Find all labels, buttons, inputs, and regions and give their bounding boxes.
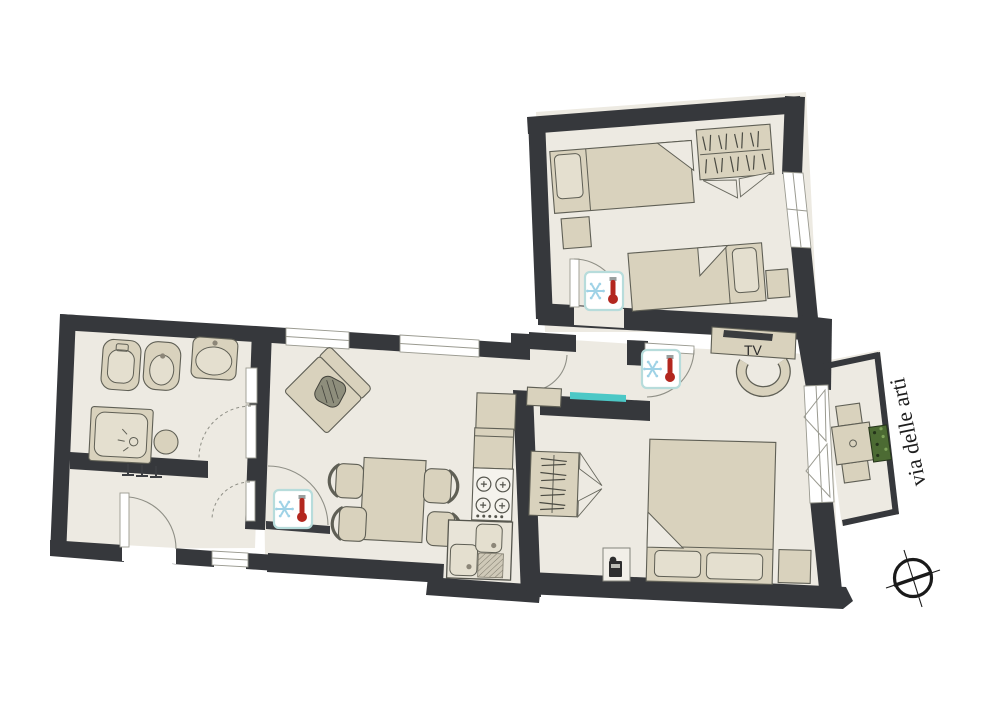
shower: [89, 406, 154, 463]
climate-icon-master-bedroom: [642, 350, 680, 388]
floorplan-page: TV: [0, 0, 1000, 707]
wall-stub-living-hall: [511, 333, 529, 353]
kitchen-sink: [447, 520, 513, 580]
pillow: [654, 550, 701, 577]
bathroom-stool: [154, 430, 178, 454]
nightstand: [766, 269, 790, 299]
hall-cabinet: [527, 387, 562, 407]
balcony-table: [832, 422, 875, 465]
wall-bottom-b: [172, 548, 214, 567]
pillow: [706, 553, 763, 580]
tv-label: TV: [744, 342, 763, 358]
nightstand: [778, 550, 811, 584]
entry-window: [212, 551, 248, 567]
wall-twin-east-upper: [782, 96, 805, 175]
balcony-chair: [836, 403, 863, 426]
tv-console: TV: [711, 327, 796, 359]
living-window-1: [286, 328, 349, 349]
pillow: [554, 153, 583, 199]
bathroom-sink: [191, 337, 239, 381]
nightstand: [561, 217, 591, 249]
wall-niche: [246, 368, 257, 403]
dining-table: [360, 457, 426, 542]
drainboard: [478, 553, 504, 578]
pillow: [732, 247, 759, 293]
climate-icon-twin-bedroom: [585, 272, 623, 310]
bidet: [142, 341, 181, 391]
apartment-floorplan: TV: [0, 0, 1000, 707]
climate-icon-living: [274, 490, 312, 528]
oven: [473, 428, 513, 469]
entry-door-gap: [122, 545, 176, 564]
compass-icon: [886, 550, 940, 607]
safe-icon: [603, 548, 630, 581]
wall-hall-top-west: [529, 332, 576, 352]
stove: [472, 468, 514, 521]
toilet: [100, 339, 141, 392]
kitchen-counter: [476, 393, 516, 430]
